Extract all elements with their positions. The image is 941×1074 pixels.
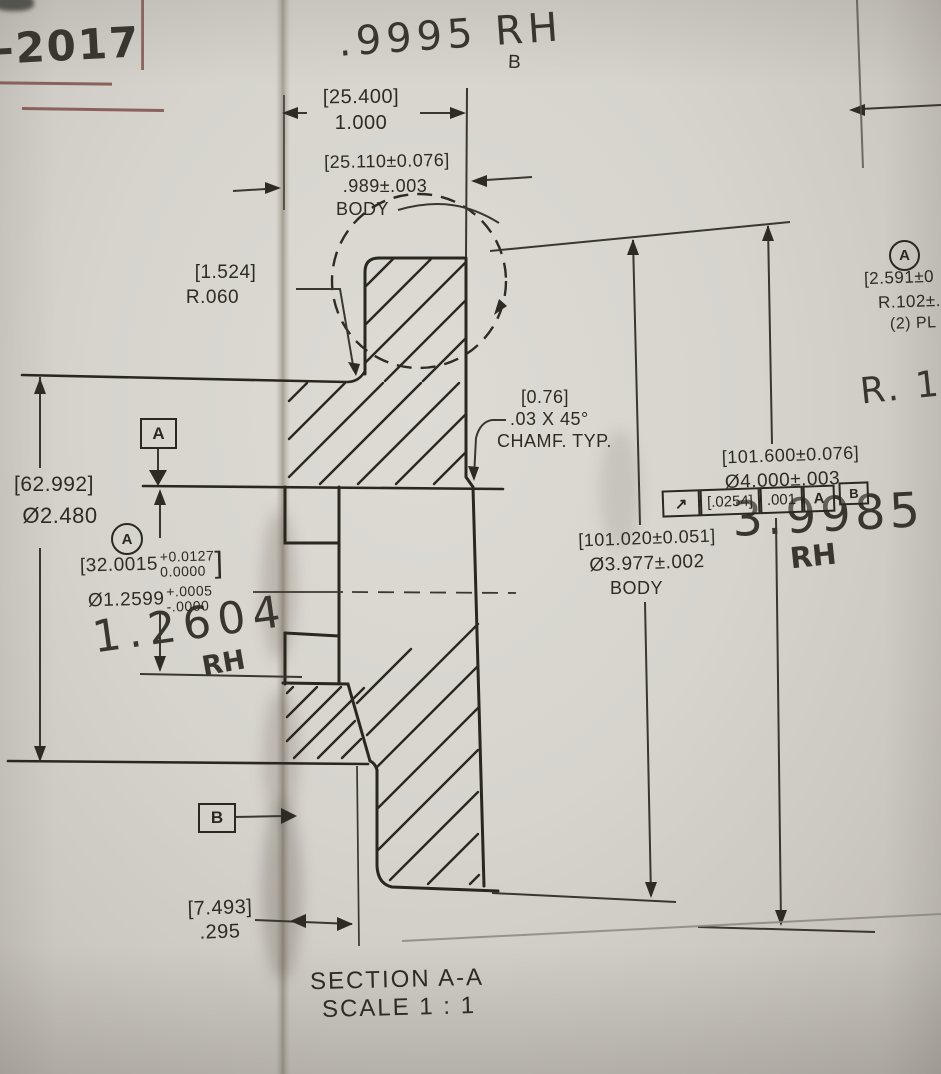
section-hatching xyxy=(287,259,479,884)
dim-bore-mm-open: [32.0015 xyxy=(80,554,158,577)
dim-bore-mm-plus: +0.0127 xyxy=(160,548,215,564)
dim-bore-mm-close: ] xyxy=(214,546,224,579)
detail-circle-b xyxy=(332,194,507,368)
dim-corner-r-places: (2) PL xyxy=(890,314,937,334)
dim-mid-dia-in: Ø2.480 xyxy=(4,503,116,528)
dim-bore-in-minus: -.0000 xyxy=(166,598,213,614)
dim-corner-r-mm: [2.591±0 xyxy=(864,267,935,289)
dim-od-body-label: BODY xyxy=(610,578,663,599)
detail-circle-label: B xyxy=(508,52,522,74)
dim-chamfer-label: CHAMF. TYP. xyxy=(497,431,612,452)
datum-b-box: B xyxy=(198,803,236,833)
dim-fillet-mm: [1.524] xyxy=(163,262,288,284)
handwritten-year-note: -2017 xyxy=(0,18,141,74)
dim-bore-mm: [32.0015+0.01270.0000] xyxy=(80,548,224,581)
dim-bore-mm-minus: 0.0000 xyxy=(160,563,215,579)
handwritten-od-rh: RH xyxy=(788,538,838,576)
dim-body-width-label: BODY xyxy=(336,199,389,220)
dim-bore-in-value: Ø1.2599 xyxy=(88,588,165,611)
dim-chamfer-in: .03 X 45° xyxy=(510,409,589,430)
datum-a-triangle xyxy=(149,470,167,486)
photographed-engineering-drawing: -2017 .9995 RH 1.2604 RH 3.9985 RH R. 1C… xyxy=(0,0,941,1074)
dim-mid-dia-mm: [62.992] xyxy=(0,473,110,497)
scale-label: SCALE 1 : 1 xyxy=(322,992,477,1024)
datum-a-box: A xyxy=(140,418,177,449)
circled-datum-a-right: A xyxy=(889,240,920,271)
dim-chamfer-mm: [0.76] xyxy=(521,387,569,408)
dim-hub-th-in: .295 xyxy=(178,920,263,946)
dim-hub-th-mm: [7.493] xyxy=(168,895,273,922)
dim-width-in: 1.000 xyxy=(296,112,426,135)
dim-bore-in: Ø1.2599+.0005-.0000 xyxy=(88,583,213,616)
dim-fillet-in: R.060 xyxy=(155,287,270,309)
datum-b-triangle xyxy=(281,808,297,824)
fcf-tol-mm: [.0254] xyxy=(700,487,761,516)
dim-width-mm: [25.400] xyxy=(296,85,426,109)
dim-body-width-mm: [25.110±0.076] xyxy=(292,149,482,173)
dim-corner-r-in: R.102±. xyxy=(878,291,941,313)
section-title: SECTION A-A xyxy=(310,964,485,996)
fcf-datum-a: A xyxy=(803,485,836,513)
dim-body-width-in: .989±.003 xyxy=(300,176,470,197)
fcf-datum-b: B xyxy=(838,481,869,505)
fcf-tol-in: .001 xyxy=(759,486,803,514)
runout-icon: ↗ xyxy=(662,489,701,517)
